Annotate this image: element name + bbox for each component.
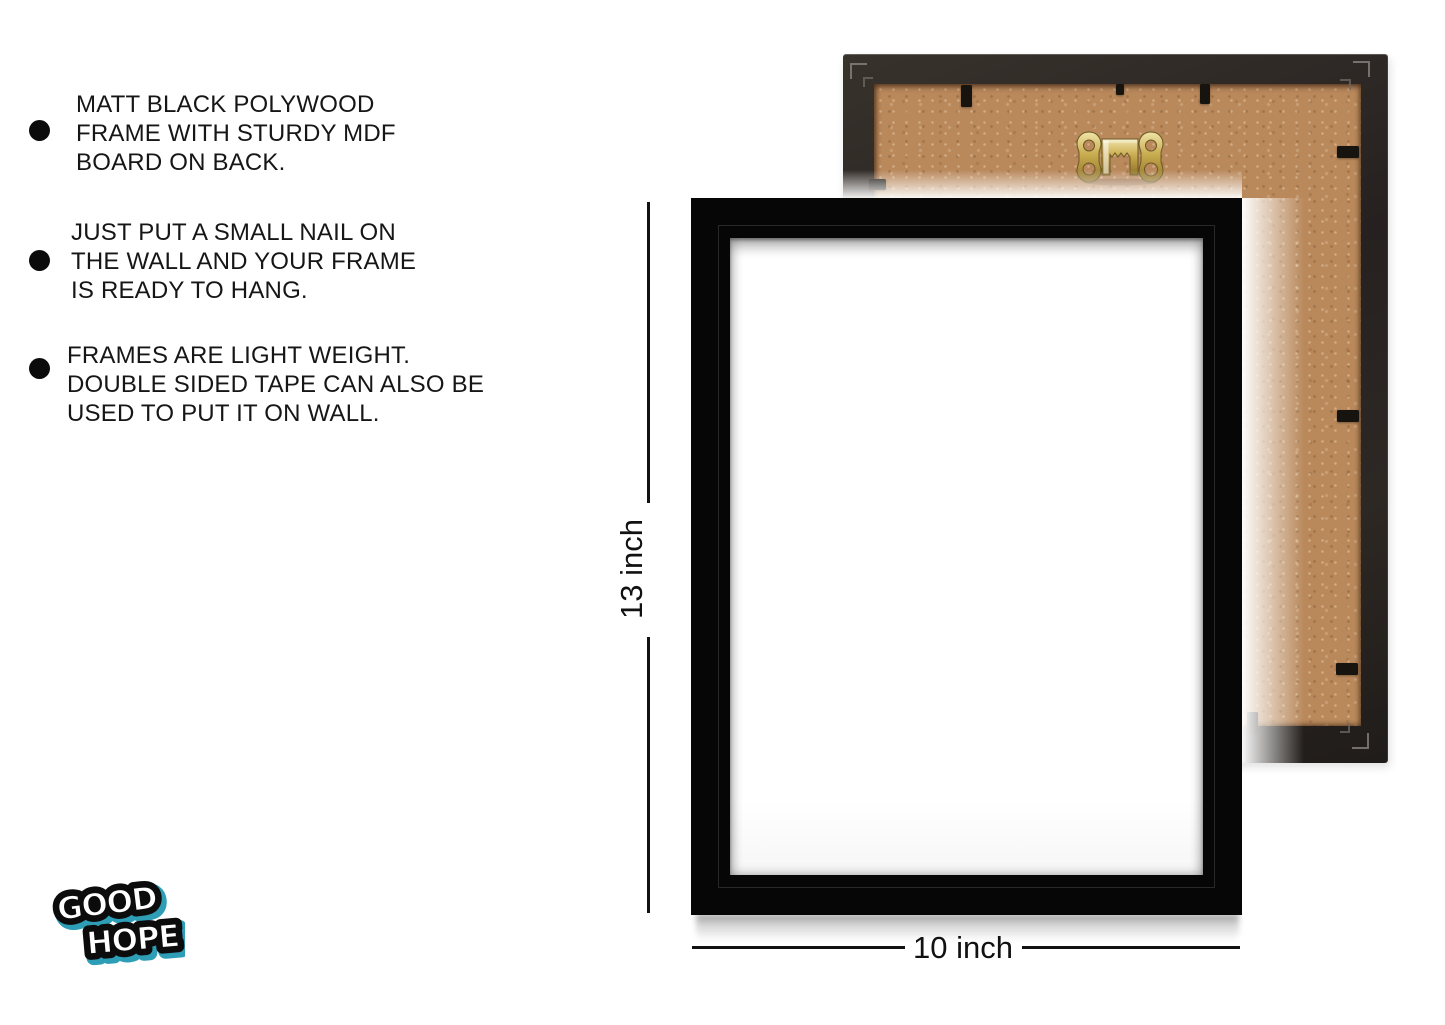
feature-item: JUST PUT A SMALL NAIL ON THE WALL AND YO… xyxy=(71,218,416,305)
vnail-corner-mark xyxy=(1340,79,1351,90)
frame-opening xyxy=(730,238,1203,875)
brand-logo: GOOD GOOD GOOD HOPE HOPE HOPE xyxy=(45,870,185,968)
feature-line: JUST PUT A SMALL NAIL ON xyxy=(71,218,416,247)
width-dimension-line-right xyxy=(1022,946,1240,949)
feature-line: USED TO PUT IT ON WALL. xyxy=(67,399,484,428)
frame-glow xyxy=(843,170,1242,198)
bullet-dot-icon xyxy=(29,250,50,271)
vnail-corner-mark xyxy=(1353,61,1370,77)
feature-line: BOARD ON BACK. xyxy=(76,148,396,177)
frame-clip xyxy=(1200,84,1210,104)
feature-item: MATT BLACK POLYWOOD FRAME WITH STURDY MD… xyxy=(76,90,396,177)
frame-clip xyxy=(1337,410,1359,422)
height-dimension-line-bottom xyxy=(647,637,650,913)
feature-line: DOUBLE SIDED TAPE CAN ALSO BE xyxy=(67,370,484,399)
product-infographic: MATT BLACK POLYWOOD FRAME WITH STURDY MD… xyxy=(0,0,1445,1025)
feature-line: MATT BLACK POLYWOOD xyxy=(76,90,396,119)
feature-item: FRAMES ARE LIGHT WEIGHT. DOUBLE SIDED TA… xyxy=(67,341,484,428)
feature-line: THE WALL AND YOUR FRAME xyxy=(71,247,416,276)
frame-clip xyxy=(1337,146,1359,158)
feature-line: FRAMES ARE LIGHT WEIGHT. xyxy=(67,341,484,370)
frame-clip xyxy=(1336,663,1358,675)
height-dimension-line-top xyxy=(647,202,650,503)
bullet-dot-icon xyxy=(29,358,50,379)
frame-clip xyxy=(961,85,972,107)
bullet-dot-icon xyxy=(29,120,50,141)
frame-clip xyxy=(1116,84,1124,95)
frame-front-view-photo xyxy=(691,198,1242,915)
vnail-corner-mark xyxy=(1340,723,1350,733)
feature-line: FRAME WITH STURDY MDF xyxy=(76,119,396,148)
feature-line: IS READY TO HANG. xyxy=(71,276,416,305)
width-dimension-label: 10 inch xyxy=(913,930,1013,966)
height-dimension-label: 13 inch xyxy=(614,519,650,619)
width-dimension-line-left xyxy=(692,946,905,949)
vnail-corner-mark xyxy=(1352,733,1369,749)
frame-glow xyxy=(1242,198,1304,763)
vnail-corner-mark xyxy=(863,77,873,87)
